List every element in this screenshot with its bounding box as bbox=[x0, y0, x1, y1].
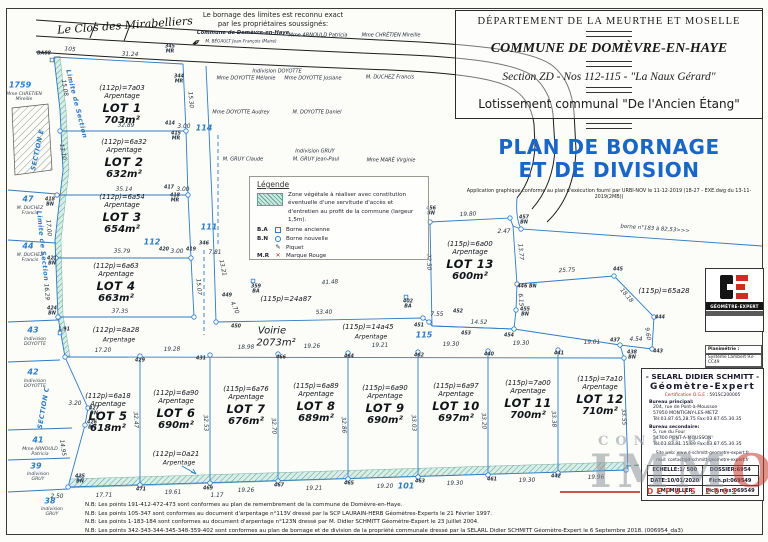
plan-label: 7.55 bbox=[431, 312, 444, 318]
lot-label-lot-8: (115p)=6a89ArpentageLOT 8689m² bbox=[293, 382, 338, 426]
plan-label: 344 MR bbox=[174, 75, 184, 86]
plan-label: 43 bbox=[27, 327, 38, 336]
plan-label: 467 bbox=[274, 483, 284, 488]
plan-label: 440 bbox=[484, 352, 494, 357]
certification-value: 591SC200005 bbox=[709, 393, 740, 398]
plan-label: 114 bbox=[196, 125, 213, 134]
plan-label: 455 BN bbox=[520, 308, 530, 319]
plan-label: 32.47 bbox=[131, 412, 138, 429]
plan-label: 443 bbox=[653, 349, 663, 354]
legend-item-piquet: ✎ Piquet bbox=[250, 244, 428, 251]
plan-label: 15.07 bbox=[194, 278, 202, 295]
plan-label: 469 bbox=[203, 486, 213, 491]
plan-label: 414 bbox=[165, 121, 175, 126]
plan-label: 32.70 bbox=[269, 418, 276, 435]
office1-line: Tél:03.87.65.28.75 Fax:03.87.65.30.35 bbox=[642, 417, 763, 423]
plan-label: 13.77 bbox=[516, 243, 524, 260]
plan-label: 53.40 bbox=[316, 310, 333, 317]
fich-mes-cell: Fich.mes:069549 bbox=[702, 486, 758, 496]
plan-label: 402 BA bbox=[403, 300, 413, 311]
legend-item-borne-nouvelle: B.N Borne nouvelle bbox=[250, 236, 428, 242]
plan-label: M. DUCHEZ Francis bbox=[366, 75, 414, 81]
borne-ancienne-icon bbox=[275, 227, 281, 233]
plan-label: 1.17 bbox=[211, 493, 224, 499]
plan-label: 453 bbox=[461, 331, 471, 336]
planimetrie-value: Système Lambert 93-CC49 bbox=[705, 354, 762, 368]
lot-label-lot-12: (115p)=7a10ArpentageLOT 12710m² bbox=[576, 375, 624, 419]
plan-label: M. DUCHEZ Francis bbox=[17, 253, 44, 263]
planimetrie-label: Planimétrie : bbox=[705, 345, 762, 354]
email: mail: contact@d-schmitt-geometre-expert.… bbox=[642, 457, 763, 462]
plan-label: 19.80 bbox=[460, 212, 477, 219]
plan-label: 437 bbox=[610, 338, 620, 343]
plan-label: 41.48 bbox=[321, 279, 338, 287]
commune-title: COMMUNE DE DOMÈVRE-EN-HAYE bbox=[458, 41, 760, 57]
plan-label: (115p)=24a87 bbox=[260, 296, 311, 304]
plan-label: M. BÉGAULT Jean-François (Maire) bbox=[205, 40, 276, 45]
plan-label: 32.89 bbox=[118, 123, 135, 130]
firm-name: - SELARL DIDIER SCHMITT - bbox=[642, 372, 763, 381]
plan-label: 429 bbox=[135, 358, 145, 363]
plan-label: Arpentage bbox=[355, 335, 387, 342]
separator bbox=[586, 61, 632, 67]
plan-title-line2: ET DE DIVISION bbox=[455, 159, 763, 182]
legend-abbr: B.N bbox=[257, 236, 270, 242]
plan-label: 450 bbox=[231, 324, 241, 329]
plan-label: 4.54 bbox=[630, 337, 643, 343]
plan-sheet: (112p)=7a03ArpentageLOT 1703m²(112p)=6a3… bbox=[0, 0, 768, 542]
plan-label: 7.81 bbox=[209, 250, 222, 256]
plan-label: Indivision DOYOTTE bbox=[252, 69, 301, 75]
plan-label: Mme ARNOULD Patricia bbox=[22, 447, 58, 457]
plan-label: 19.30 bbox=[443, 342, 460, 349]
header-box: DÉPARTEMENT DE LA MEURTHE ET MOSELLE COM… bbox=[455, 10, 763, 119]
plan-label: Mme DOYOTTE Audrey bbox=[212, 110, 269, 116]
lot-label-lot-13: (115p)=6a00ArpentageLOT 13600m² bbox=[446, 240, 494, 284]
plan-label: Mme CHRETIEN Mireille bbox=[6, 92, 42, 102]
plan-label: 19.30 bbox=[513, 341, 530, 348]
plan-label: Mme ARNOULD Patricia bbox=[289, 33, 348, 39]
legend-zone-text: Zone végétale à réaliser avec constituti… bbox=[288, 191, 423, 225]
plan-label: 1759 bbox=[9, 82, 31, 91]
note-line: N.B: Les points 1-183-184 sont conformes… bbox=[85, 518, 765, 527]
plan-label: 345 MR bbox=[165, 45, 175, 56]
piquet-icon: ✎ bbox=[275, 243, 280, 251]
certification-label: Certification O.G.E : bbox=[665, 393, 708, 398]
marque-rouge-icon: ✕ bbox=[275, 252, 280, 259]
plan-label: M. DOYOTTE Daniel bbox=[293, 110, 342, 116]
plan-label: Indivision DOYOTTE bbox=[24, 337, 46, 347]
geometre-expert-logo-box: GÉOMÈTRE-EXPERT bbox=[705, 268, 764, 332]
plan-label: BA88 bbox=[37, 51, 51, 56]
plan-label: Mme DOYOTTE Josiane bbox=[284, 76, 341, 82]
plan-label: 418 BN bbox=[45, 198, 55, 209]
section-title: Section ZD - Nos 112-115 - "La Naux Géra… bbox=[458, 71, 760, 83]
plan-label: 1.91 bbox=[58, 327, 70, 332]
note-line: N.B: Les points 105-347 sont conformes a… bbox=[85, 510, 765, 519]
plan-label: 112 bbox=[144, 239, 161, 248]
plan-label: 6.15 bbox=[516, 293, 523, 306]
geometre-expert-logo-icon bbox=[720, 275, 750, 299]
legend-item-borne-ancienne: B.A Borne ancienne bbox=[250, 227, 428, 233]
lot-label-lot-9: (115p)=6a90ArpentageLOT 9690m² bbox=[362, 384, 407, 428]
lot-label-lot-3: (112p)=6a54ArpentageLOT 3654m² bbox=[99, 193, 144, 237]
plan-label: (112p)=8a28 bbox=[93, 327, 140, 335]
plan-label: 41 bbox=[32, 437, 43, 446]
plan-label: 431 bbox=[196, 356, 206, 361]
plan-label: 39 bbox=[30, 463, 41, 472]
plan-label: 44 bbox=[22, 243, 33, 252]
lotissement-title: Lotissement communal "De l'Ancien Étang" bbox=[458, 97, 760, 111]
plan-label: 111 bbox=[201, 224, 218, 233]
plan-label: 33.55 bbox=[619, 409, 626, 426]
plan-label: 19.26 bbox=[238, 488, 255, 495]
note-line: N.B: Les points 342-343-344-345-348-359-… bbox=[85, 527, 765, 536]
attestation-heading: Le bornage des limites est reconnu exact… bbox=[198, 11, 348, 29]
plan-label: 37.35 bbox=[112, 309, 129, 316]
plan-label: (115p)=65a28 bbox=[638, 288, 689, 296]
plan-label: 19.26 bbox=[304, 344, 321, 351]
plan-label: 19.96 bbox=[588, 475, 605, 482]
plan-label: 427 BN bbox=[89, 407, 99, 418]
plan-label: 3.00 bbox=[171, 249, 184, 255]
website: Site web: www.d-schmitt-geometre-expert.… bbox=[642, 450, 763, 455]
plan-label: 449 bbox=[222, 293, 232, 298]
plan-label: 438 BN bbox=[627, 351, 637, 362]
plan-label: 32.53 bbox=[201, 415, 208, 432]
plan-label: 359 BA bbox=[251, 285, 261, 296]
plan-label: 17.20 bbox=[95, 348, 112, 355]
plan-label: Indivision GRUY bbox=[27, 472, 49, 482]
legend-label: Marque Rouge bbox=[286, 253, 326, 259]
logo-brand: GÉOMÈTRE-EXPERT bbox=[706, 302, 763, 310]
plan-label: 445 bbox=[613, 267, 623, 272]
lot-label-lot-10: (115p)=6a97ArpentageLOT 10697m² bbox=[432, 382, 480, 426]
plan-label: 42 bbox=[27, 369, 38, 378]
plan-label: 35.14 bbox=[116, 187, 133, 194]
plan-label: 25.75 bbox=[559, 267, 576, 274]
office2-line: Tél:03.83.81.15.89 Fax:03.87.65.30.35 bbox=[642, 442, 763, 448]
scale-cell: ECHELLE:1/ 500 bbox=[647, 465, 702, 475]
plan-label: 417 bbox=[164, 185, 174, 190]
lot-label-lot-6: (112p)=6a90ArpentageLOT 6690m² bbox=[153, 389, 198, 433]
plan-label: 446 BN bbox=[517, 284, 536, 289]
plan-label: 2.50 bbox=[51, 494, 64, 500]
titleblock-table: ECHELLE:1/ 500 DOSSIER:6954 DATE:10/01/2… bbox=[647, 465, 759, 497]
plan-label: Indivision DOYOTTE bbox=[24, 379, 46, 389]
header-panel: DÉPARTEMENT DE LA MEURTHE ET MOSELLE COM… bbox=[455, 10, 763, 200]
plan-label: 31.24 bbox=[122, 52, 139, 59]
plan-label: 457 BN bbox=[519, 216, 529, 227]
plan-label: 451 bbox=[414, 323, 424, 328]
plan-label: 425 BN bbox=[75, 475, 85, 486]
lot-label-lot-11: (115p)=7a00ArpentageLOT 11700m² bbox=[504, 379, 552, 423]
plan-label: 415 MR bbox=[171, 132, 181, 143]
plan-label: 3.00 bbox=[178, 124, 191, 130]
plan-label: 33.03 bbox=[409, 415, 416, 432]
plan-label: 105 bbox=[64, 46, 76, 53]
plan-label: 19.20 bbox=[377, 484, 394, 491]
note-line: N.B: Les points 191-412-472-473 sont con… bbox=[85, 501, 765, 510]
plan-label: 19.28 bbox=[164, 347, 181, 354]
legend-box: Légende Zone végétale à réaliser avec co… bbox=[249, 176, 429, 260]
plan-label: Arpentage bbox=[103, 338, 135, 345]
plan-label: 32.86 bbox=[339, 417, 346, 434]
separator bbox=[586, 87, 632, 93]
plan-label: 462 bbox=[414, 353, 424, 358]
plan-label: 101 bbox=[398, 483, 415, 492]
legend-label: Piquet bbox=[286, 245, 304, 251]
plan-label: 19.30 bbox=[519, 478, 536, 485]
plan-label: 452 bbox=[453, 309, 463, 314]
plan-label: Arpentage bbox=[163, 461, 195, 468]
plan-label: 115 bbox=[416, 332, 433, 341]
plan-label: 3.20 bbox=[69, 401, 82, 407]
plan-label: Mme DOYOTTE Mélanie bbox=[217, 76, 276, 82]
dossier-cell: DOSSIER:6954 bbox=[702, 465, 758, 475]
lot-label-lot-2: (112p)=6a32ArpentageLOT 2632m² bbox=[101, 138, 146, 182]
titleblock: - SELARL DIDIER SCHMITT - Géomètre-Exper… bbox=[641, 368, 764, 501]
date-cell: DATE:10/01/2020 bbox=[647, 476, 702, 486]
borne-nouvelle-icon bbox=[275, 236, 281, 242]
vegetal-zone-swatch-icon bbox=[257, 193, 283, 206]
lot-label-lot-4: (112p)=6a63ArpentageLOT 4663m² bbox=[93, 262, 138, 306]
plan-label: 17.71 bbox=[96, 493, 113, 500]
plan-title: PLAN DE BORNAGE ET DE DIVISION bbox=[455, 136, 763, 182]
legend-label: Borne ancienne bbox=[286, 227, 330, 233]
plan-label: 420 bbox=[159, 247, 169, 252]
legend-label: Borne nouvelle bbox=[286, 236, 328, 242]
legend-abbr: B.A bbox=[257, 227, 270, 233]
plan-label: 465 bbox=[344, 481, 354, 486]
plan-label: 463 bbox=[415, 479, 425, 484]
certification: Certification O.G.E : 591SC200005 bbox=[642, 393, 763, 398]
plan-label: 346 bbox=[199, 241, 209, 246]
plan-label: Commune de Domèvre-en-Haye bbox=[197, 31, 289, 37]
plan-label: 424 BN bbox=[47, 307, 57, 318]
plan-label: 47 bbox=[22, 196, 33, 205]
legend-abbr: M.R bbox=[257, 253, 270, 259]
plan-label: 444 bbox=[655, 315, 665, 320]
plan-label: Indivision GRUY bbox=[295, 149, 334, 155]
plan-label: 418 MR bbox=[170, 194, 180, 205]
plan-label: Voirie bbox=[258, 326, 286, 337]
logo-subbar bbox=[706, 311, 763, 316]
separator bbox=[586, 31, 632, 37]
plan-label: 15.30 bbox=[186, 91, 194, 108]
plan-label: Mme MARÉ Virginie bbox=[367, 158, 416, 164]
plan-label: Indivision GRUY bbox=[41, 507, 63, 517]
lot-label-lot-1: (112p)=7a03ArpentageLOT 1703m² bbox=[99, 84, 144, 128]
plan-label: (112p)=0a21 bbox=[153, 451, 200, 459]
plan-label: 19.30 bbox=[447, 481, 464, 488]
lot-label-lot-7: (115p)=6a76ArpentageLOT 7676m² bbox=[223, 385, 268, 429]
plan-label: 471 bbox=[136, 487, 146, 492]
plan-label: 2.47 bbox=[498, 229, 511, 235]
plan-label: 3.00 bbox=[177, 187, 190, 193]
plan-label: 442 bbox=[551, 474, 561, 479]
plan-label: 33.38 bbox=[549, 411, 556, 428]
plan-label: 2073m² bbox=[256, 338, 295, 349]
legend-title: Légende bbox=[257, 180, 428, 189]
department-title: DÉPARTEMENT DE LA MEURTHE ET MOSELLE bbox=[458, 16, 760, 27]
plan-label: 16.29 bbox=[42, 283, 50, 300]
plan-label: 18.98 bbox=[238, 345, 255, 352]
plan-label: 14.52 bbox=[471, 320, 488, 327]
plan-label: 461 bbox=[487, 477, 497, 482]
plan-label: (115p)=14a45 bbox=[342, 324, 393, 332]
firm-role: Géomètre-Expert bbox=[642, 382, 763, 392]
legend-item-marque-rouge: M.R ✕ Marque Rouge bbox=[250, 253, 428, 259]
application-note: Application graphique conforme au plan d… bbox=[455, 188, 763, 200]
plan-label: 35.79 bbox=[114, 249, 131, 256]
plan-label: 33.20 bbox=[479, 413, 486, 430]
attestation-line1: Le bornage des limites est reconnu exact bbox=[198, 11, 348, 20]
plan-label: 19.21 bbox=[372, 343, 389, 350]
plan-label: 454 bbox=[504, 333, 514, 338]
separator bbox=[586, 123, 632, 129]
plan-label: 19.61 bbox=[165, 490, 182, 497]
fich-pl-cell: Fich.pl:069549 bbox=[702, 476, 758, 486]
plan-label: 464 bbox=[344, 354, 354, 359]
plan-label: 441 bbox=[554, 351, 564, 356]
author-cell: J.M. MULLER bbox=[647, 486, 702, 496]
plan-label: 419 bbox=[186, 247, 196, 252]
plan-label: 19.01 bbox=[584, 340, 601, 347]
plan-label: M. GRUY Claude bbox=[223, 157, 264, 163]
plan-label: Mme CHRÉTIEN Mireille bbox=[362, 33, 421, 39]
attestation-line2: par les propriétaires soussignés: bbox=[198, 20, 348, 29]
plan-label: 426 BN bbox=[87, 421, 97, 432]
plan-label: M. DUCHEZ Francis bbox=[17, 206, 44, 216]
plan-label: 19.21 bbox=[306, 486, 323, 493]
plan-title-line1: PLAN DE BORNAGE bbox=[455, 136, 763, 159]
plan-label: M. GRUY Jean-Paul bbox=[293, 157, 339, 163]
notes-block: N.B: Les points 191-412-472-473 sont con… bbox=[85, 501, 765, 535]
plan-label: 466 bbox=[276, 355, 286, 360]
